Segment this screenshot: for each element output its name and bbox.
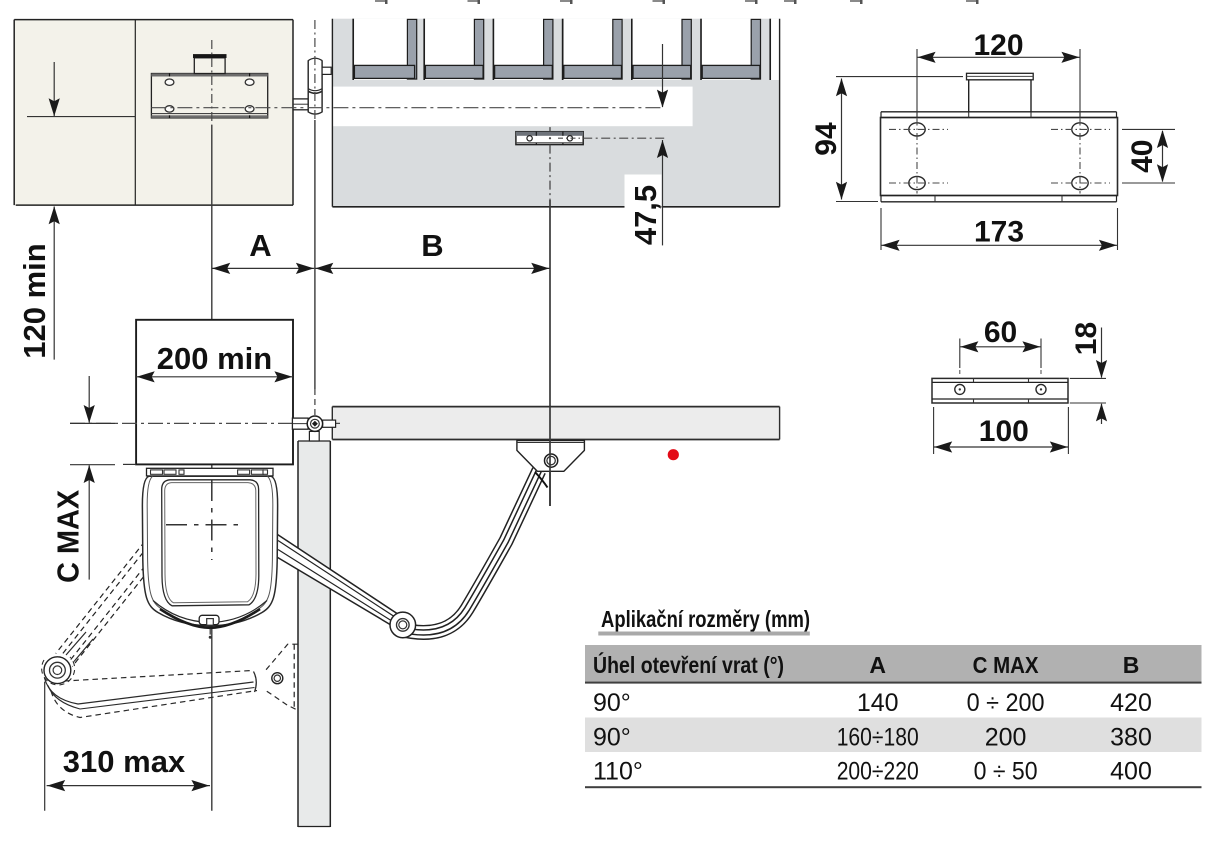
svg-text:94: 94 [810, 122, 843, 156]
svg-text:110°: 110° [593, 758, 643, 786]
svg-text:C MAX: C MAX [51, 490, 86, 583]
svg-text:B: B [1123, 652, 1140, 678]
svg-text:200÷220: 200÷220 [837, 758, 919, 786]
svg-text:A: A [249, 228, 271, 263]
svg-text:400: 400 [1110, 758, 1152, 786]
svg-text:380: 380 [1110, 723, 1152, 751]
svg-text:Úhel otevření vrat (°): Úhel otevření vrat (°) [593, 651, 784, 678]
svg-text:0 ÷ 200: 0 ÷ 200 [967, 689, 1045, 717]
svg-text:18: 18 [1070, 322, 1103, 355]
svg-text:0 ÷ 50: 0 ÷ 50 [974, 758, 1038, 786]
svg-text:140: 140 [857, 689, 899, 717]
svg-text:90°: 90° [593, 723, 631, 751]
svg-text:C MAX: C MAX [973, 652, 1040, 678]
svg-text:310 max: 310 max [63, 744, 186, 779]
svg-text:100: 100 [979, 415, 1029, 448]
svg-text:173: 173 [974, 216, 1024, 249]
svg-text:120 min: 120 min [17, 243, 52, 358]
svg-text:Aplikační rozměry (mm): Aplikační rozměry (mm) [601, 606, 810, 632]
svg-text:420: 420 [1110, 689, 1152, 717]
svg-text:B: B [421, 228, 443, 263]
svg-text:200: 200 [985, 723, 1027, 751]
svg-text:47,5: 47,5 [628, 185, 663, 245]
svg-text:40: 40 [1126, 140, 1159, 173]
svg-text:A: A [869, 652, 886, 678]
svg-text:60: 60 [984, 316, 1017, 349]
svg-text:90°: 90° [593, 689, 631, 717]
svg-text:200 min: 200 min [157, 341, 272, 376]
svg-text:160÷180: 160÷180 [837, 723, 919, 751]
